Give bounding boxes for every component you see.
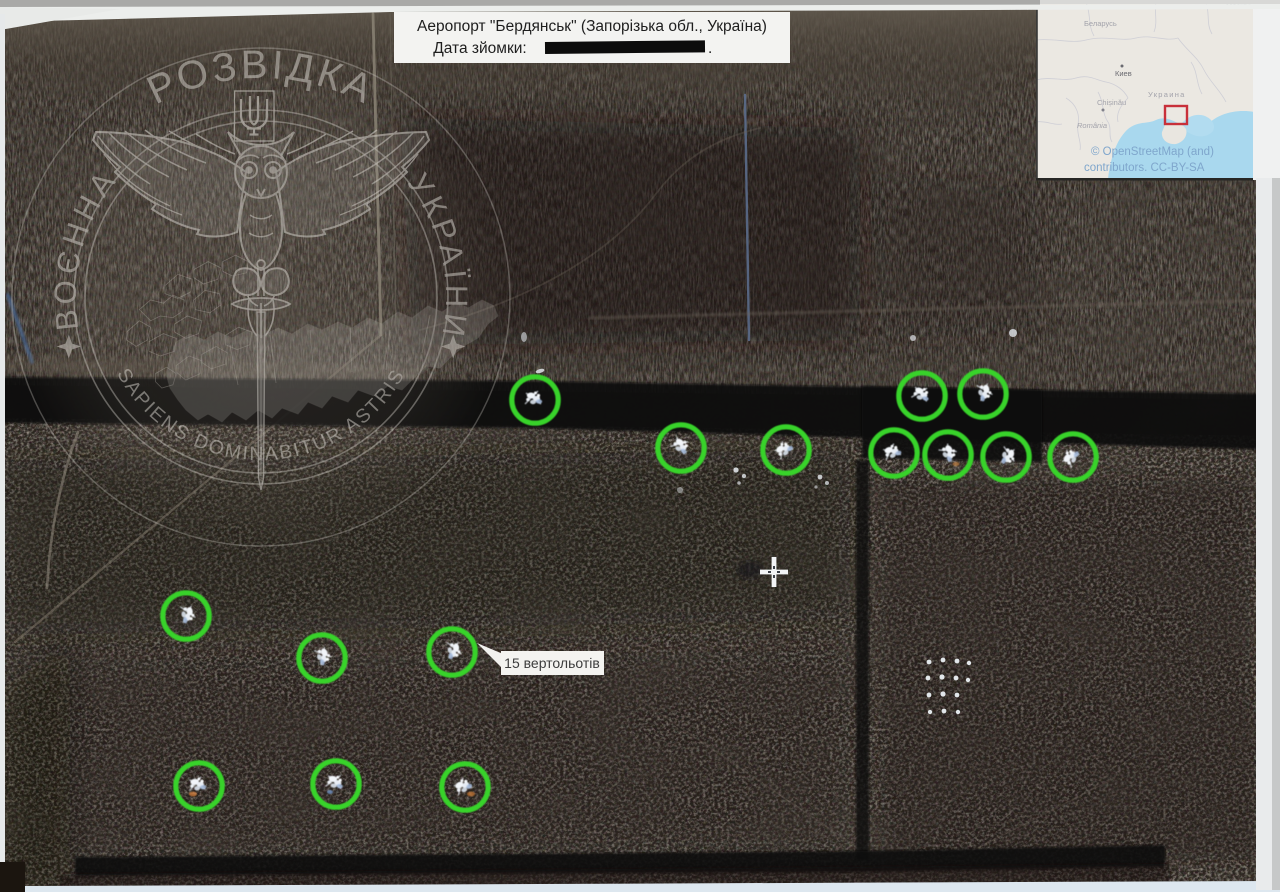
- svg-text:România: România: [1077, 121, 1107, 130]
- svg-text:.: .: [708, 40, 712, 57]
- svg-text:15 вертольотів: 15 вертольотів: [504, 655, 600, 671]
- svg-text:Украина: Украина: [1148, 90, 1186, 99]
- svg-text:Дата зйомки:: Дата зйомки:: [433, 40, 526, 57]
- svg-text:Киев: Киев: [1115, 69, 1132, 78]
- svg-text:Беларусь: Беларусь: [1084, 19, 1117, 28]
- svg-text:contributors. CC-BY-SA: contributors. CC-BY-SA: [1084, 162, 1205, 174]
- svg-text:Аеропорт "Бердянськ" (Запорізь: Аеропорт "Бердянськ" (Запорізька обл., У…: [417, 18, 767, 35]
- svg-text:© OpenStreetMap (and): © OpenStreetMap (and): [1091, 146, 1214, 158]
- svg-text:Chișinău: Chișinău: [1097, 98, 1126, 107]
